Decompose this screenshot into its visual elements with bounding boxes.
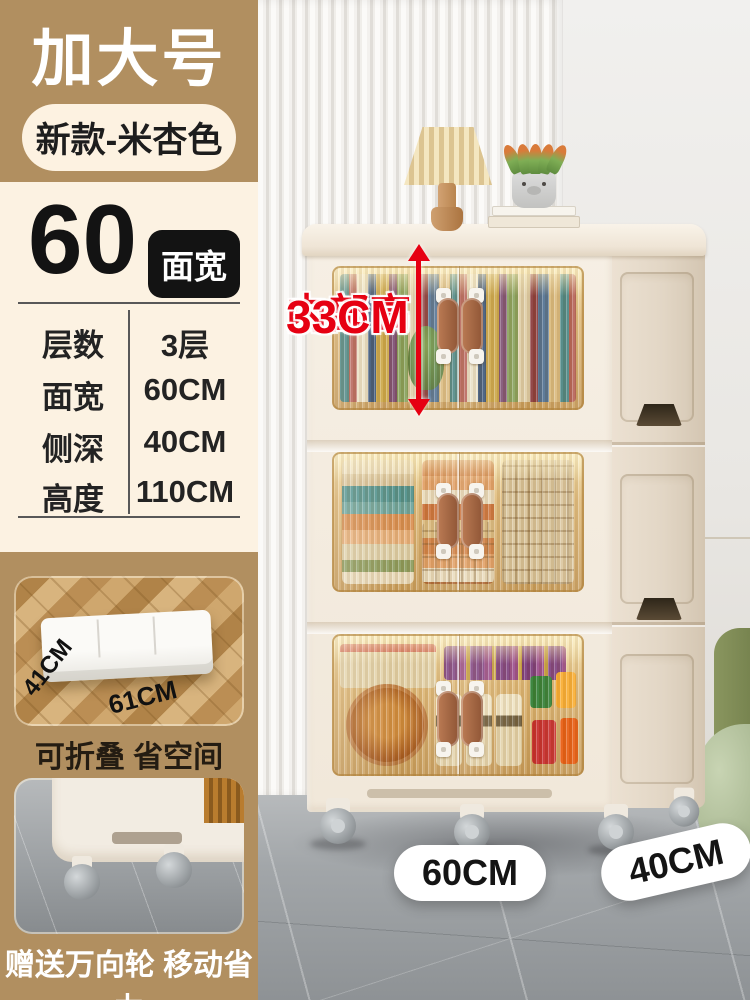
caster-tire bbox=[156, 852, 192, 888]
bear-eye bbox=[522, 182, 526, 186]
photo-cabinet-corner bbox=[52, 778, 244, 862]
caster-wheel bbox=[318, 798, 358, 846]
caster-wheel bbox=[667, 788, 701, 829]
size-header-panel: 加大号 新款-米杏色 bbox=[0, 0, 258, 182]
folded-box-photo: 41CM 61CM bbox=[14, 576, 244, 726]
width-number: 60 bbox=[28, 190, 137, 288]
front-width-pill: 60CM bbox=[394, 845, 546, 901]
side-inset-panel bbox=[620, 654, 694, 784]
arrow-head-down bbox=[408, 399, 430, 416]
buckle-clip bbox=[436, 349, 451, 364]
succulent-plant bbox=[506, 136, 564, 174]
photo-caster-wheel bbox=[154, 844, 194, 888]
photo-caster-wheel bbox=[62, 856, 102, 900]
tier1-handle-group bbox=[430, 288, 490, 364]
spec-value: 110CM bbox=[130, 474, 240, 510]
arrow-shaft bbox=[416, 256, 421, 404]
tier2-handle-group bbox=[430, 483, 490, 559]
cabinet-side-panel bbox=[612, 242, 705, 808]
bear-muzzle bbox=[527, 186, 541, 195]
side-inset-panel bbox=[620, 272, 694, 422]
folded-width-label: 61CM bbox=[105, 674, 180, 721]
caster-hub bbox=[678, 805, 690, 817]
spec-value: 3层 bbox=[130, 320, 240, 365]
side-tier-line bbox=[612, 622, 705, 625]
fold-panel-line bbox=[97, 619, 101, 657]
wheels-photo bbox=[14, 778, 244, 934]
bear-eye bbox=[542, 182, 546, 186]
decor-book-stack bbox=[488, 206, 580, 228]
buckle-clip bbox=[469, 544, 484, 559]
feature2-caption: 赠送万向轮 移动省力 bbox=[0, 940, 258, 1000]
tier-groove bbox=[307, 440, 612, 452]
buckle-clip bbox=[469, 349, 484, 364]
leather-strap-handle bbox=[461, 493, 483, 549]
side-tier-line bbox=[612, 442, 705, 445]
bear-planter bbox=[512, 169, 556, 208]
feature1-caption: 可折叠 省空间 bbox=[0, 732, 258, 776]
height-arrow-icon bbox=[406, 244, 430, 416]
base-vent-slot bbox=[367, 789, 552, 798]
leather-strap-handle bbox=[437, 493, 459, 549]
spec-table: 层数 3层 面宽 60CM 侧深 40CM 高度 110CM bbox=[18, 302, 240, 518]
side-inset-panel bbox=[620, 474, 694, 604]
buckle-clip bbox=[436, 742, 451, 757]
caster-hub bbox=[331, 819, 345, 833]
decor-book bbox=[488, 216, 580, 228]
leather-strap-handle bbox=[461, 298, 483, 354]
lamp-base bbox=[431, 207, 463, 231]
spec-value: 40CM bbox=[130, 424, 240, 460]
width-unit-badge: 面宽 bbox=[148, 230, 240, 298]
leather-strap-handle bbox=[437, 298, 459, 354]
tier-groove bbox=[307, 622, 612, 634]
leather-strap-handle bbox=[461, 691, 483, 747]
leather-strap-handle bbox=[437, 691, 459, 747]
spec-label: 侧深 bbox=[18, 424, 128, 469]
spec-panel: 60 面宽 层数 3层 面宽 60CM 侧深 40CM 高度 110CM bbox=[0, 182, 258, 552]
variant-pill: 新款-米杏色 bbox=[22, 104, 236, 171]
tier3-handle-group bbox=[430, 681, 490, 757]
cabinet-lid bbox=[302, 224, 706, 256]
size-title: 加大号 bbox=[0, 8, 258, 98]
spec-label: 面宽 bbox=[18, 372, 128, 417]
caster-hub bbox=[609, 825, 623, 839]
caster-hub bbox=[465, 825, 479, 839]
spec-label: 层数 bbox=[18, 320, 128, 365]
fold-panel-line bbox=[152, 617, 156, 655]
spec-label: 高度 bbox=[18, 474, 128, 519]
photo-basket-hint bbox=[198, 778, 244, 828]
buckle-clip bbox=[436, 544, 451, 559]
caster-tire bbox=[64, 864, 100, 900]
photo-base-slot bbox=[112, 832, 182, 844]
annotation-line2: 33CM bbox=[286, 294, 409, 341]
spec-value: 60CM bbox=[130, 372, 240, 408]
feature-panel: 41CM 61CM 可折叠 省空间 赠送万向轮 移动省力 bbox=[0, 552, 258, 1000]
product-infographic: 内部高 33CM 60CM 40CM 加大号 新款-米杏色 60 面宽 层数 3… bbox=[0, 0, 750, 1000]
buckle-clip bbox=[469, 742, 484, 757]
